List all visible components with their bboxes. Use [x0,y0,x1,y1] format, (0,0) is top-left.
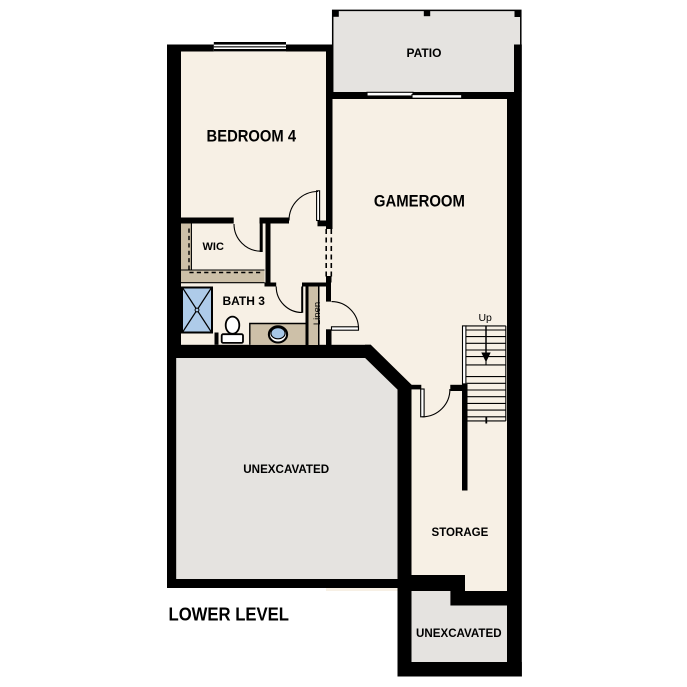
svg-text:PATIO: PATIO [407,46,442,60]
svg-text:UNEXCAVATED: UNEXCAVATED [416,626,502,640]
svg-text:BEDROOM 4: BEDROOM 4 [207,126,297,145]
svg-text:Linen: Linen [312,302,323,325]
svg-text:BATH 3: BATH 3 [222,294,265,308]
svg-text:LOWER LEVEL: LOWER LEVEL [169,605,290,625]
svg-text:GAMEROOM: GAMEROOM [374,192,465,211]
svg-text:UNEXCAVATED: UNEXCAVATED [243,462,329,476]
svg-text:Up: Up [478,312,492,324]
svg-text:WIC: WIC [203,241,224,253]
svg-text:STORAGE: STORAGE [432,525,489,539]
